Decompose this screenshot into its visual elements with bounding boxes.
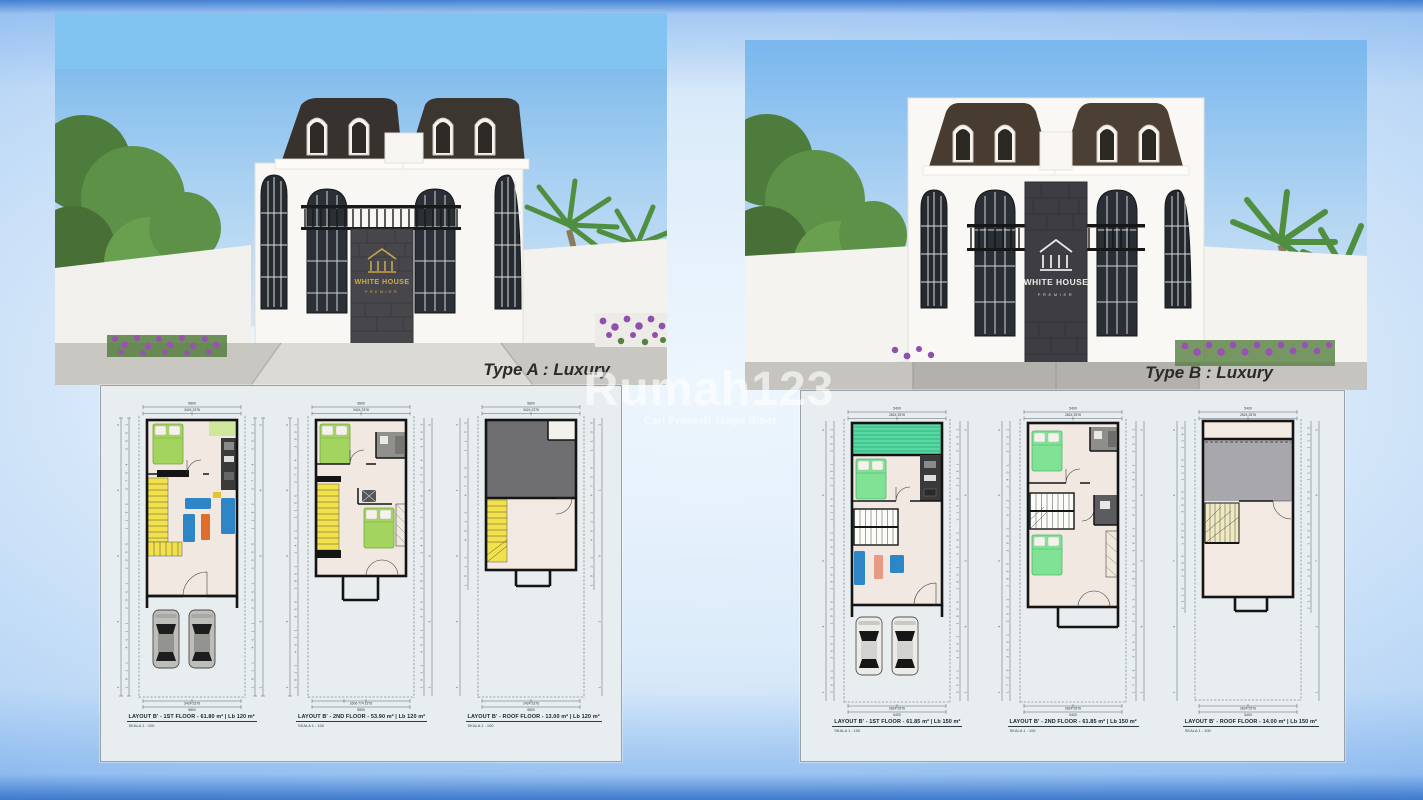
dim-left-ticks: 2110 3000 1950 3000 1150 1190 [1180,427,1184,609]
type-b-caption: Type B : Luxury [1145,363,1274,382]
dim-left-ticks: 1725 3001 2031 1950 3001 612 1401 2251 [1005,429,1009,693]
plan-scale: SKALA 1 : 100 [129,723,155,728]
type-a-caption: Type A : Luxury [483,360,611,379]
ground [745,362,1367,390]
bed [320,424,350,464]
dim-left-total: 15040 [285,424,289,688]
dim-left-ticks: 1911 4011 2001 3050 1150 2704 3001 [124,424,128,688]
bathroom-2 [1094,495,1118,525]
bed [1032,431,1062,471]
plan-scale: SKALA 1 : 100 [1010,728,1036,733]
plan-scale: SKALA 1 : 100 [298,723,324,728]
dim-top-splits: 2824 2576 [1240,413,1256,417]
stairs [854,509,898,545]
type-a-render: WHITE HOUSE PREMIER Type A : Luxury [55,13,667,385]
plan-a1-drawing: 5800 3424 2376 15040 1911 4011 2001 3050… [113,400,271,712]
dim-right-total: 12011 [597,424,601,688]
wardrobe [396,504,406,546]
dim-bottom-total: 5800 [357,708,365,712]
dim-right-total: 15040 [428,424,432,688]
bed [1032,535,1062,575]
plan-b3-drawing: 5400 2824 2576 12740 2110 3000 1950 3000… [1169,405,1327,717]
dim-top-total: 5400 [1244,407,1252,411]
sky-band [55,13,667,69]
car [153,610,179,668]
dim-right-total: 15040 [258,424,262,688]
plan-label: LAYOUT B' - 1ST FLOOR - 61.80 m² | Lb 12… [127,714,257,722]
dim-left-total: 12740 [1172,429,1176,693]
dim-right-ticks: 2110 3000 1950 3000 1150 1190 [1306,427,1310,609]
dim-right-total: 12740 [1314,429,1318,693]
plan-scale: SKALA 1 : 100 [468,723,494,728]
plan-label: LAYOUT B' - 2ND FLOOR - 53.90 m² | Lb 12… [296,714,427,722]
stairs [1205,503,1239,543]
plan-label: LAYOUT B' - 2ND FLOOR - 61.85 m² | Lb 15… [1008,719,1139,727]
dim-right-ticks: 2031 3001 1950 1901 3001 1150 2251 2051 [956,429,960,693]
plan-a2-drawing: 5800 3424 2376 15040 1911 4011 550 2901 … [282,400,440,712]
bed [153,424,183,464]
dim-left-total: 12011 [455,424,459,688]
type-b-house-illustration: WHITE HOUSE PREMIER Type B : Luxury [745,40,1367,390]
dim-top-splits: 3424 2376 [183,408,199,412]
dim-right-ticks: 1911 4011 4750 1150 [589,422,593,586]
dim-bottom-total: 5800 [527,708,535,712]
garden-patch [209,420,237,436]
roof-garden [852,423,942,455]
bathroom [376,432,406,458]
logo-line1: WHITE HOUSE [354,277,409,286]
type-b-render: WHITE HOUSE PREMIER Type B : Luxury [745,40,1367,390]
deck-notch [548,420,576,440]
dim-left-total: 14240 [821,429,825,693]
logo-line1: WHITE HOUSE [1024,277,1089,287]
dim-left-ticks: 2031 3001 1950 1901 3001 1150 2251 2051 [830,429,834,693]
plan-label: LAYOUT B' - ROOF FLOOR - 14.00 m² | Lb 1… [1183,719,1319,727]
dim-right-ticks: 1911 4011 550 2901 1401 1150 2704 3001 [420,424,424,688]
roof-deck [1203,439,1293,501]
plan-scale: SKALA 1 : 100 [834,728,860,733]
page-background: WHITE HOUSE PREMIER Type A : Luxury [0,0,1423,800]
left-boundary-wall [745,246,913,370]
stairs [1030,493,1074,529]
plan-label: LAYOUT B' - 1ST FLOOR - 61.85 m² | Lb 15… [832,719,962,727]
dim-left-ticks: 1911 4011 550 2901 1401 1150 2704 3001 [294,424,298,688]
dim-top-splits: 3424 2376 [522,408,538,412]
type-a-house-illustration: WHITE HOUSE PREMIER Type A : Luxury [55,13,667,385]
stone-entry-pier: WHITE HOUSE PREMIER [351,229,413,345]
car [189,610,215,668]
plan-b1-drawing: 5400 2824 2576 14240 2031 3001 1950 1901… [818,405,976,717]
dim-bottom-splits: 1600 774 2276 [350,702,373,706]
plan-a-first-floor: 5800 3424 2376 15040 1911 4011 2001 3050… [113,400,271,761]
watermark-tagline: Cari Properti Tanpa Ribet [644,416,776,427]
logo-line2: PREMIER [365,290,399,294]
plan-a3-drawing: 5800 3424 2376 12011 1911 4011 4750 1150… [452,400,610,712]
kitchen [221,438,237,490]
stairs [317,476,341,558]
type-a-floorplans-panel: 5800 3424 2376 15040 1911 4011 2001 3050… [100,385,622,762]
dim-bottom-total: 5800 [188,708,196,712]
dim-top-total: 5800 [188,402,196,406]
dim-top-total: 5400 [1069,407,1077,411]
dim-bottom-total: 5400 [893,713,901,717]
plan-a-second-floor: 5800 3424 2376 15040 1911 4011 550 2901 … [282,400,440,761]
dim-top-splits: 2824 2576 [1064,413,1080,417]
dim-bottom-total: 5400 [1244,713,1252,717]
type-b-floorplans-panel: 5400 2824 2576 14240 2031 3001 1950 1901… [800,390,1345,762]
dim-left-total: 14240 [997,429,1001,693]
bed [364,508,394,548]
stairs [487,500,507,562]
plan-b2-drawing: 5400 2824 2576 14240 1725 3001 2031 1950… [994,405,1152,717]
plan-a-roof-floor: 5800 3424 2376 12011 1911 4011 4750 1150… [452,400,610,761]
dim-left-total: 15040 [116,424,120,688]
wardrobe [1106,531,1118,577]
logo-line2: PREMIER [1038,292,1074,297]
plan-label: LAYOUT B' - ROOF FLOOR - 13.00 m² | Lb 1… [466,714,602,722]
dim-top-splits: 3424 2376 [353,408,369,412]
bathroom [1090,427,1118,451]
plan-b-roof-floor: 5400 2824 2576 12740 2110 3000 1950 3000… [1169,405,1327,761]
dim-bottom-total: 5400 [1069,713,1077,717]
plan-b-second-floor: 5400 2824 2576 14240 1725 3001 2031 1950… [994,405,1152,761]
car [892,617,918,675]
dim-left-ticks: 1911 4011 4750 1150 [463,422,467,586]
plan-scale: SKALA 1 : 100 [1185,728,1211,733]
bed [856,459,886,499]
stone-entry-pier: WHITE HOUSE PREMIER [1024,182,1089,368]
dim-top-total: 5800 [357,402,365,406]
car [856,617,882,675]
dim-right-total: 14240 [964,429,968,693]
dim-right-ticks: 1725 3001 2031 1950 3001 612 1401 2251 [1131,429,1135,693]
dim-right-ticks: 1911 4011 2001 3050 1150 2704 3001 [250,424,254,688]
plan-b-first-floor: 5400 2824 2576 14240 2031 3001 1950 1901… [818,405,976,761]
dim-right-total: 14240 [1139,429,1143,693]
dim-top-total: 5400 [893,407,901,411]
dim-top-splits: 2824 2576 [889,413,905,417]
kitchen [920,455,942,501]
dim-top-total: 5800 [527,402,535,406]
